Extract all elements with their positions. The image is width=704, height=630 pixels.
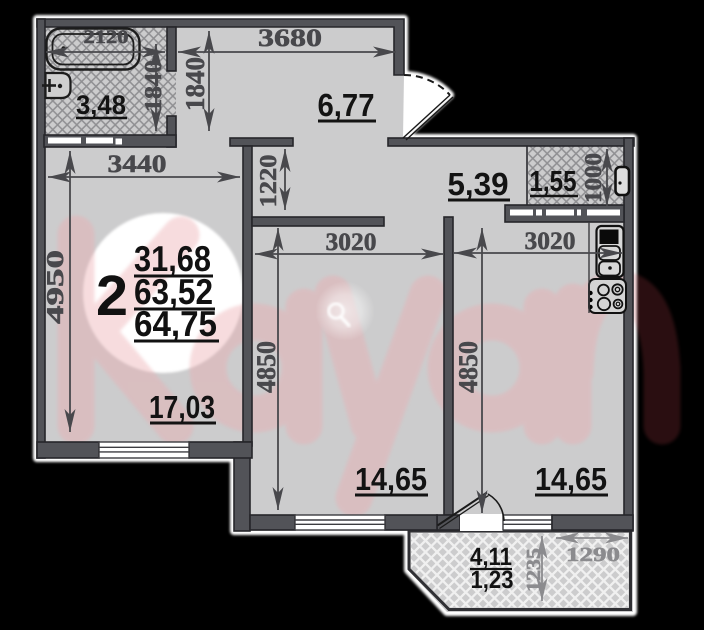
svg-text:4850: 4850 <box>453 341 483 393</box>
svg-text:4850: 4850 <box>251 341 281 393</box>
svg-text:1290: 1290 <box>566 544 620 566</box>
svg-text:2120: 2120 <box>84 27 129 48</box>
svg-text:2: 2 <box>96 264 128 328</box>
svg-text:64,75: 64,75 <box>134 303 217 344</box>
svg-text:14,65: 14,65 <box>355 461 427 497</box>
svg-text:3020: 3020 <box>525 228 576 255</box>
svg-text:1840: 1840 <box>141 60 167 112</box>
svg-text:3,48: 3,48 <box>76 90 126 120</box>
svg-text:17,03: 17,03 <box>149 389 215 425</box>
svg-text:1,55: 1,55 <box>530 166 577 198</box>
svg-text:6,77: 6,77 <box>318 87 375 123</box>
svg-text:14,65: 14,65 <box>535 461 607 497</box>
svg-text:5,39: 5,39 <box>448 166 509 202</box>
svg-text:4950: 4950 <box>43 250 69 324</box>
svg-text:1,23: 1,23 <box>471 566 514 594</box>
svg-text:3440: 3440 <box>108 151 167 178</box>
svg-text:1235: 1235 <box>523 548 545 592</box>
svg-text:1220: 1220 <box>256 155 282 208</box>
svg-text:3680: 3680 <box>258 25 322 52</box>
svg-text:1840: 1840 <box>180 57 210 111</box>
svg-text:1000: 1000 <box>581 153 607 203</box>
svg-text:3020: 3020 <box>326 229 377 256</box>
